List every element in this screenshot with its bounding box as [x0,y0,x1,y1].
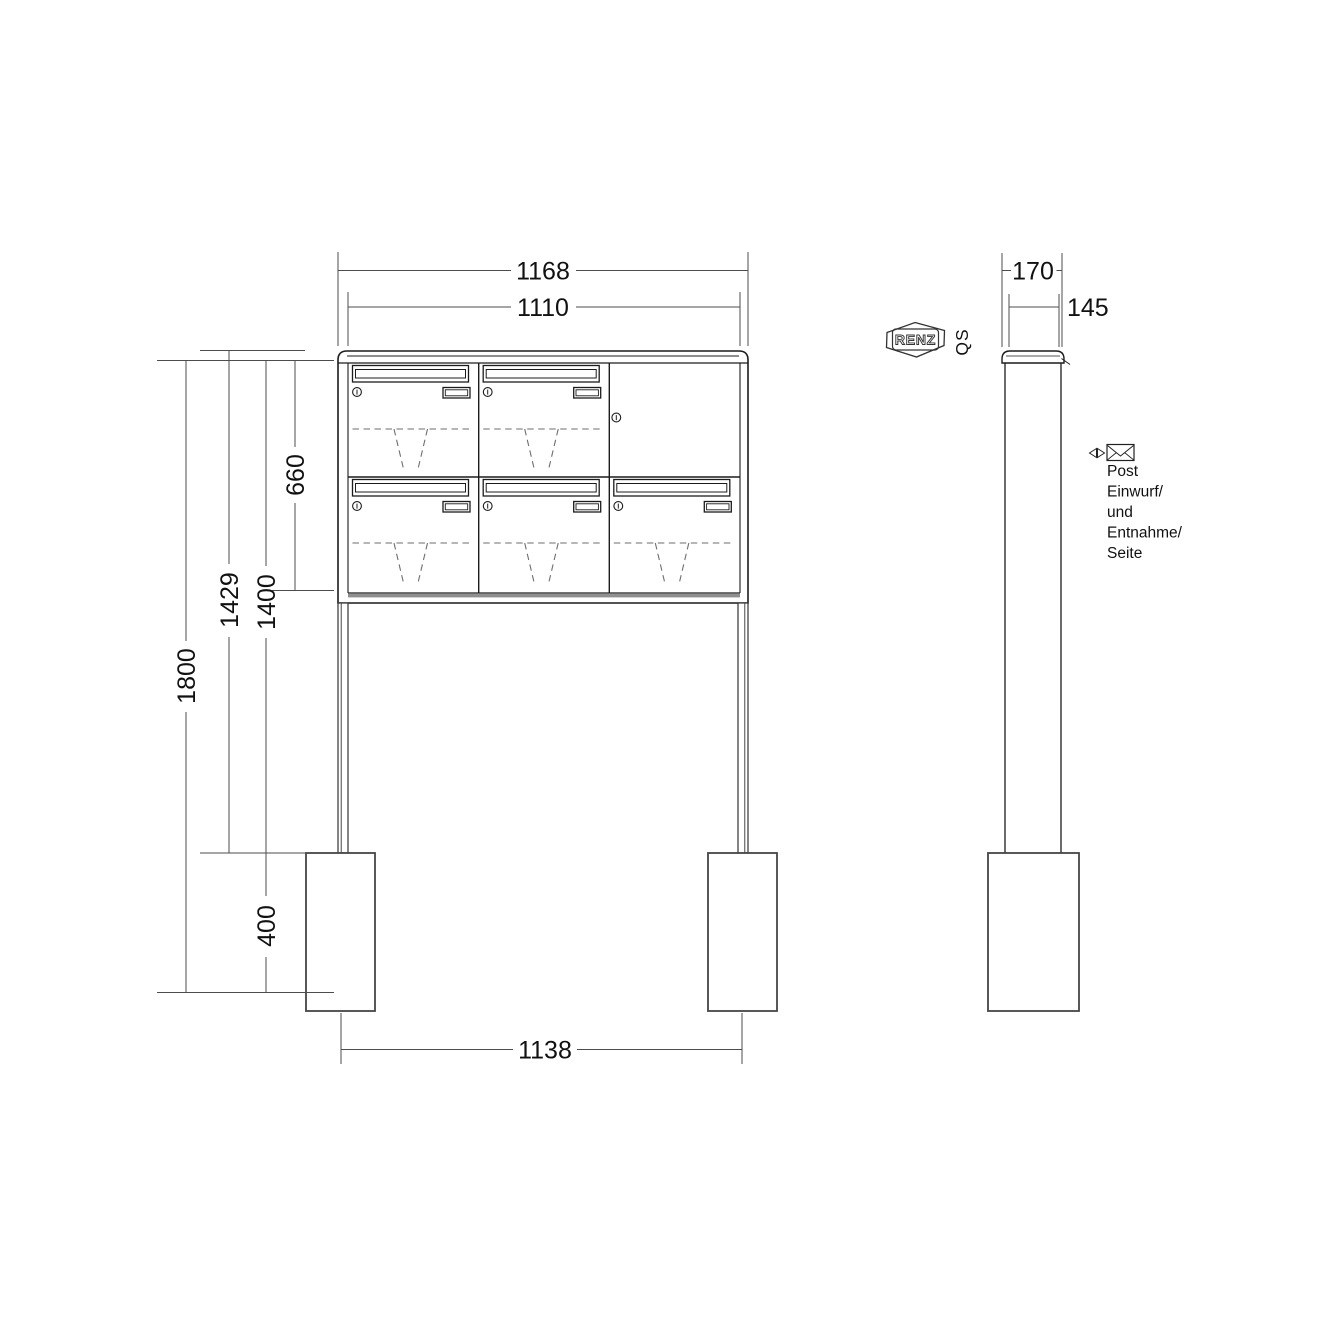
logo-text: RENZ [895,331,936,347]
renz-logo: RENZ [887,323,945,358]
annotation-line-2: Einwurf/ [1107,484,1164,501]
right-post [738,603,748,853]
side-ground-anchor [988,853,1079,1011]
side-cap [1002,351,1064,363]
ext-145 [1009,294,1059,347]
dim-cabinet-height-label: 660 [282,454,310,496]
dim-depth-outer-label: 170 [1012,257,1054,285]
dim-anchor-spacing-label: 1138 [518,1036,572,1064]
annotation-line-3: und [1107,504,1133,521]
bottom-band [348,594,740,598]
dim-anchor-depth-label: 400 [253,905,281,947]
dim-width-inner-label: 1110 [517,294,569,322]
annotation-line-5: Seite [1107,545,1142,562]
technical-drawing-canvas: 1168 1110 660 1429 1400 1800 400 1138 17… [0,0,1320,1320]
left-post [338,603,348,853]
front-view [306,351,777,1011]
right-triangle [1098,449,1105,458]
envelope-flap [1108,446,1134,457]
left-post-outline [338,603,348,853]
left-triangle [1090,449,1097,458]
mailbox-stand-drawing: 1168 1110 660 1429 1400 1800 400 1138 17… [0,0,1320,1320]
right-post-outline [738,603,748,853]
annotation-line-1: Post [1107,463,1139,480]
annotation: Post Einwurf/ und Entnahme/ Seite [1090,445,1183,563]
dim-height-1400-label: 1400 [253,574,281,630]
side-view [988,351,1079,1011]
envelope-body [1107,445,1134,461]
right-ground-anchor [708,853,777,1011]
qs-label: QS [952,328,972,355]
envelope-icon [1107,445,1134,461]
annotation-line-4: Entnahme/ [1107,525,1183,542]
dim-depth-inner-label: 145 [1067,294,1109,322]
dim-height-1429-label: 1429 [216,572,244,628]
dim-width-outer-label: 1168 [516,257,570,285]
side-dimension-labels: 170 145 [1012,257,1109,322]
dim-total-height-label: 1800 [173,648,201,704]
view-direction-icon [1090,449,1105,458]
left-ground-anchor [306,853,375,1011]
